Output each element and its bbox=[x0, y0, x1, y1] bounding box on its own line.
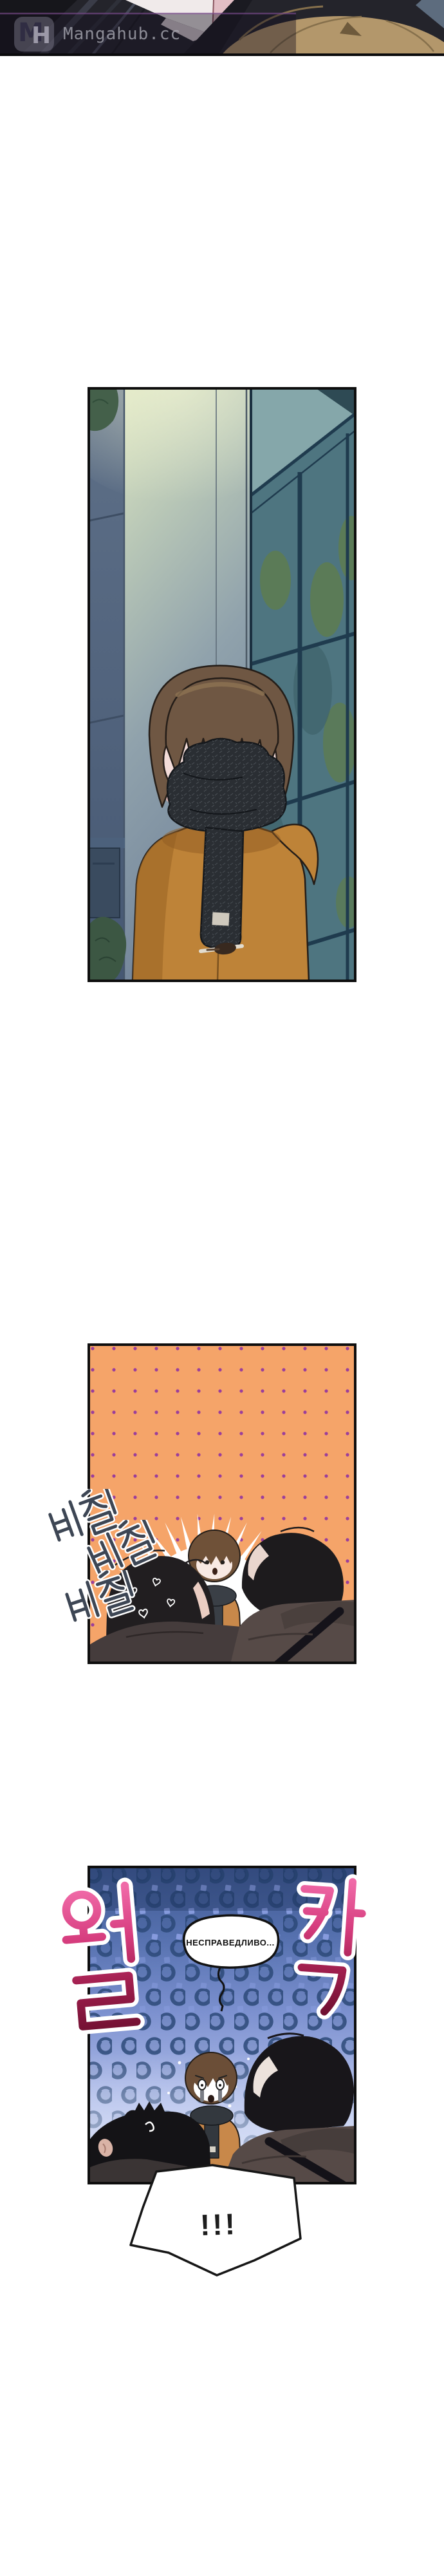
site-watermark: M H Mangahub.cc bbox=[14, 15, 227, 55]
exclaim-burst: !!! bbox=[122, 2163, 309, 2282]
webtoon-page: cropped dark close-up artwork strip at t… bbox=[0, 0, 444, 2576]
panel-street: girl in mustard duffle coat and dark pla… bbox=[88, 387, 356, 982]
watermark-site-text: Mangahub.cc bbox=[63, 24, 181, 44]
sfx-kak: 칵 bbox=[286, 1869, 373, 2036]
watermark-logo-letter-h: H bbox=[32, 23, 51, 49]
sfx-bichil-3: 비칠 bbox=[59, 1570, 149, 1625]
sfx-bichil-2: 비칠 bbox=[81, 1520, 171, 1575]
sfx-wal: 왈 bbox=[57, 1877, 156, 2048]
watermark-logo: M H bbox=[14, 17, 54, 52]
speech-bubble-text: НЕСПРАВЕДЛИВО... bbox=[186, 1938, 275, 1947]
exclaim-text: !!! bbox=[199, 2207, 238, 2242]
